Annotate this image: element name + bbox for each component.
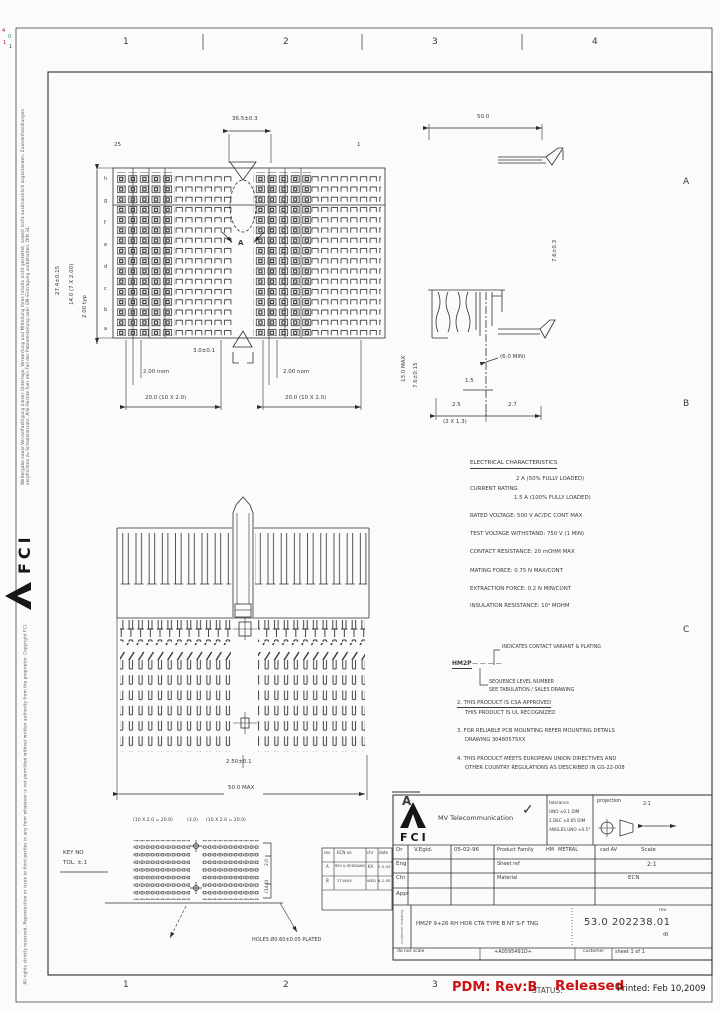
no-scale-label: do not scale xyxy=(397,950,424,955)
dim-label: (10 X 2.0 = 20.0) xyxy=(133,819,173,824)
dim-label: TOL. ±.1 xyxy=(63,861,87,867)
electrical-line: CONTACT RESISTANCE: 20 mOHM MAX xyxy=(470,550,575,555)
zone-letter: C xyxy=(683,626,689,635)
dim-label: A xyxy=(402,795,411,807)
cad-label: cad AV xyxy=(600,848,617,853)
zone-letter: B xyxy=(683,400,689,409)
dim-label: 7.6±0.3 xyxy=(553,240,559,262)
dim-label: 2.50±0.1 xyxy=(226,760,252,766)
tolerance-line: ANGLES UNO ±0.5° xyxy=(549,828,590,832)
dim-label: 25 xyxy=(114,143,121,149)
dim-label: 27.4±0.15 xyxy=(56,266,62,295)
dim-label: a xyxy=(104,327,107,332)
rev-table-cell: A xyxy=(326,865,329,869)
ratio-note: 2:1 xyxy=(643,803,651,808)
scan-speck: 4 xyxy=(2,29,5,34)
zone-number-bottom: 2 xyxy=(283,981,289,990)
fci-logo-margin: FCI xyxy=(3,515,39,610)
zone-number-top: 2 xyxy=(283,38,289,47)
electrical-line: EXTRACTION FORCE: 0.2 N MIN/CONT xyxy=(470,587,571,592)
electrical-title: ELECTRICAL CHARACTERISTICS xyxy=(470,461,557,469)
dim-label: 3.0±0.1 xyxy=(193,349,215,355)
rev-table-cell: WSD xyxy=(367,879,376,883)
projection-label: projection xyxy=(597,800,621,805)
scan-speck: 1 xyxy=(9,45,12,50)
copyright-notice-bottom: All rights strictly reserved. Reproducti… xyxy=(23,605,28,985)
drawn-label: Dr xyxy=(396,848,403,854)
approved-label: Appr xyxy=(396,892,409,898)
dim-label: d xyxy=(104,265,107,270)
dim-label: 2.0 xyxy=(266,859,271,866)
rev-value: B xyxy=(664,932,670,936)
rev-label: rev xyxy=(659,909,666,914)
rev-table-cell: REV & REDRAWN xyxy=(335,865,365,869)
scan-speck: 1 xyxy=(3,41,6,46)
part-key-top-note: INDICATES CONTACT VARIANT & PLATING xyxy=(502,646,601,651)
status-value: Released xyxy=(555,980,624,994)
scan-speck: 0 xyxy=(8,35,11,40)
electrical-line: TEST VOLTAGE WITHSTAND: 750 V (1 MIN) xyxy=(470,532,584,537)
dim-label: (2 X 1.3) xyxy=(443,420,467,426)
eng-label: Eng xyxy=(396,862,406,868)
part-description: HM2P 9+26 RH HDR CTA TYPE B NT S-F TNG xyxy=(416,922,538,928)
dim-label: 20.0 (10 X 2.0) xyxy=(285,396,326,402)
drawn-name: V.Egid. xyxy=(414,848,433,854)
scale-label: Scale xyxy=(641,848,656,854)
rev-table-cell: KA xyxy=(368,865,373,869)
product-family-label: Product Family xyxy=(497,848,534,853)
dim-label: 1.5 xyxy=(465,379,474,385)
sheet-ref-label: Sheet ref xyxy=(497,862,520,867)
note-2: 2. THIS PRODUCT IS CSA APPROVED xyxy=(457,701,551,708)
dim-label: h xyxy=(104,177,107,182)
dim-label: f xyxy=(104,221,106,226)
dim-label: 14.0 (7 X 2.00) xyxy=(70,264,76,305)
customer-label: customer xyxy=(583,950,604,955)
electrical-line: MATING FORCE: 0.75 N MAX/CONT xyxy=(470,569,563,574)
check-mark-icon: ✓ xyxy=(522,803,534,817)
dim-label: (10 X 2.0 = 20.0) xyxy=(206,819,246,824)
rev-table-header: chr xyxy=(367,851,373,855)
rev-table-header: rev xyxy=(324,851,330,855)
drawing-number: 53.0 202238.01 xyxy=(584,918,671,928)
dim-label: 7.6±0.15 xyxy=(414,362,420,388)
zone-number-bottom: 3 xyxy=(432,981,438,990)
note-3: DRAWING 30480575XX xyxy=(465,738,525,743)
zone-letter: A xyxy=(683,178,689,187)
drawing-linework: FCI xyxy=(0,0,720,1012)
dim-label: 50.0 MAX xyxy=(228,786,254,792)
product-family-value: HM xyxy=(546,848,554,853)
note-4: OTHER COUNTRY REGULATIONS AS DESCRIBED I… xyxy=(465,766,625,771)
part-key-seq-note: SEE TABULATION / SALES DRAWING xyxy=(489,689,574,694)
copyright-notice-top: Weitergabe sowie Vervielfaeltigung diese… xyxy=(20,105,30,485)
dim-label: 36.5±0.3 xyxy=(232,117,258,123)
fci-logo-titleblock: FCI xyxy=(400,802,429,844)
electrical-line: INSULATION RESISTANCE: 10⁴ MOHM xyxy=(470,604,569,609)
zone-number-top: 4 xyxy=(592,38,598,47)
scale-value: 2:1 xyxy=(647,862,657,868)
ecn-label: ECN xyxy=(628,876,639,882)
current-rating-label: CURRENT RATING xyxy=(470,487,518,492)
svg-text:FCI: FCI xyxy=(15,533,34,574)
part-number-dashes: — — — — xyxy=(472,661,502,667)
dim-label: A xyxy=(238,240,243,247)
dim-label: 13.0 MAX xyxy=(402,356,408,382)
dim-label: 2.00 typ xyxy=(83,295,89,318)
note-2: THIS PRODUCT IS UL RECOGNIZED xyxy=(465,711,555,716)
part-key-seq-note: SEQUENCE LEVEL NUMBER xyxy=(489,681,554,686)
doc-code: +A0595491D+ xyxy=(494,950,532,955)
current-rating-value: 1.5 A (100% FULLY LOADED) xyxy=(514,496,591,501)
rev-table-header: date xyxy=(379,851,388,855)
drawn-date: 05-02-96 xyxy=(454,848,479,854)
checked-label: Chr xyxy=(396,876,406,882)
dim-label: (14.0) xyxy=(266,879,271,893)
rev-table-cell: B xyxy=(326,879,329,883)
dim-label: KEY NO xyxy=(63,851,84,857)
dim-label: 1 xyxy=(357,143,361,149)
dim-label: c xyxy=(104,287,107,292)
product-family-value: METRAL xyxy=(558,848,578,853)
rev-table-cell: 6-1-05 xyxy=(378,879,390,883)
current-rating-value: 2 A (50% FULLY LOADED) xyxy=(516,477,584,482)
rev-table-cell: 7-5-03 xyxy=(378,865,390,869)
zone-number-top: 1 xyxy=(123,38,129,47)
tolerance-line: 2 DEC ±0.05 DIM xyxy=(549,819,585,823)
electrical-line: RATED VOLTAGE: 500 V AC/DC CONT MAX xyxy=(470,514,582,519)
company-name: MV Telecommunication xyxy=(438,815,513,822)
dim-label: 2.00 nom xyxy=(143,370,169,376)
dim-label: e xyxy=(104,243,107,248)
zone-number-top: 3 xyxy=(432,38,438,47)
zone-number-bottom: 1 xyxy=(123,981,129,990)
printed-date: Printed: Feb 10,2009 xyxy=(617,985,706,994)
tolerance-line: UNO ±0.1 DIM xyxy=(549,810,579,814)
tolerance-line: tolerance xyxy=(549,801,569,805)
dim-label: 20.0 (10 X 2.0) xyxy=(145,396,186,402)
rev-table-header: ECN no xyxy=(337,851,352,855)
dim-label: HOLES Ø0.60±0.05 PLATED xyxy=(252,938,321,943)
svg-text:FCI: FCI xyxy=(400,831,429,844)
pdm-rev-status: PDM: Rev:B xyxy=(452,981,537,994)
dim-label: g xyxy=(104,199,107,204)
part-number-stem: HM2P xyxy=(452,661,472,669)
material-label: Material xyxy=(497,876,517,881)
doc-type-vertical: customer drawing xyxy=(400,910,404,944)
dim-label: (3.0) xyxy=(187,819,198,824)
sheet-label: sheet 1 of 1 xyxy=(615,950,645,955)
drawing-sheet: FCI Weitergabe sowie Vervielfaeltigung d… xyxy=(0,0,720,1012)
dim-label: (6.0 MIN) xyxy=(500,355,525,361)
dim-label: 2.5 xyxy=(452,403,461,409)
note-4: 4. THIS PRODUCT MEETS EUROPEAN UNION DIR… xyxy=(457,757,616,762)
note-3: 3. FOR RELIABLE PCB MOUNTING REFER MOUNT… xyxy=(457,729,615,734)
dim-label: b xyxy=(104,308,107,313)
rev-table-cell: 77160X xyxy=(337,879,352,883)
dim-label: 2.7 xyxy=(508,403,517,409)
dim-label: 50.0 xyxy=(477,115,489,121)
dim-label: 2.00 nom xyxy=(283,370,309,376)
